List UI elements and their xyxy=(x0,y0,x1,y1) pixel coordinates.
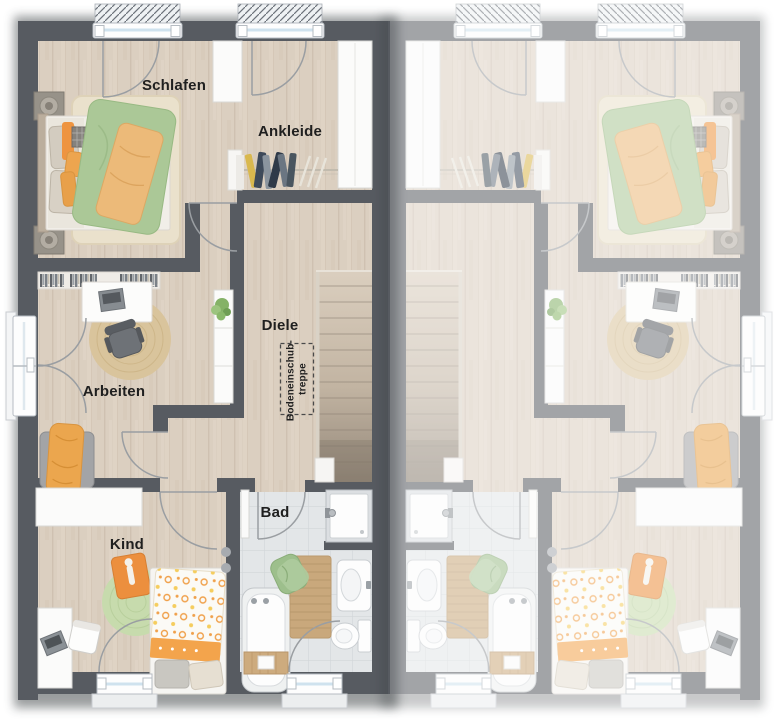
label-arbeiten: Arbeiten xyxy=(83,383,145,400)
label-schlafen: Schlafen xyxy=(142,77,206,94)
label-kind: Kind xyxy=(110,536,144,553)
right-unit-mirrored-faded xyxy=(380,4,772,708)
label-bad: Bad xyxy=(261,504,290,521)
label-ankleide: Ankleide xyxy=(258,123,322,140)
label-diele: Diele xyxy=(262,317,299,334)
floorplan-canvas: Schlafen Ankleide Diele Arbeiten Bad Kin… xyxy=(0,0,775,728)
floorplan-page: Schlafen Ankleide Diele Arbeiten Bad Kin… xyxy=(0,0,775,728)
left-unit xyxy=(6,4,398,708)
